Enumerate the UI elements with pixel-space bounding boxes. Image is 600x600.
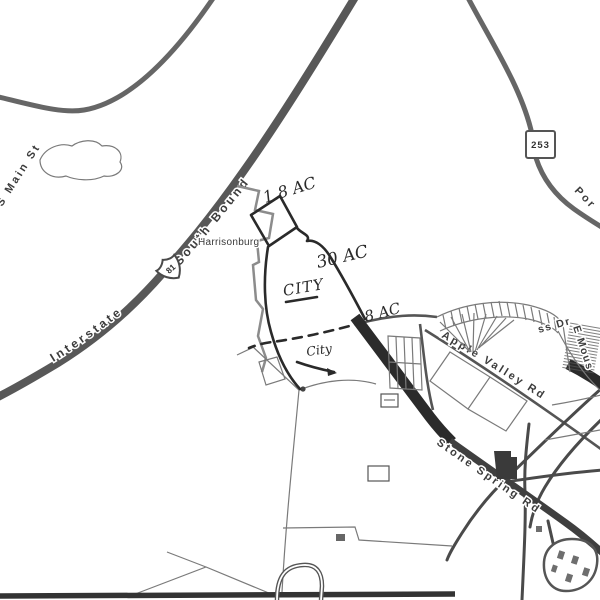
subdivision-building [536, 526, 542, 532]
route-253-shield-number: 253 [531, 140, 550, 151]
map-canvas[interactable]: S Main St Interstate South Bound 81 253 … [0, 0, 600, 600]
harrisonburg-label: Harrisonburg [198, 237, 259, 248]
bottom-edge-road [0, 594, 455, 596]
building-small [336, 534, 345, 541]
